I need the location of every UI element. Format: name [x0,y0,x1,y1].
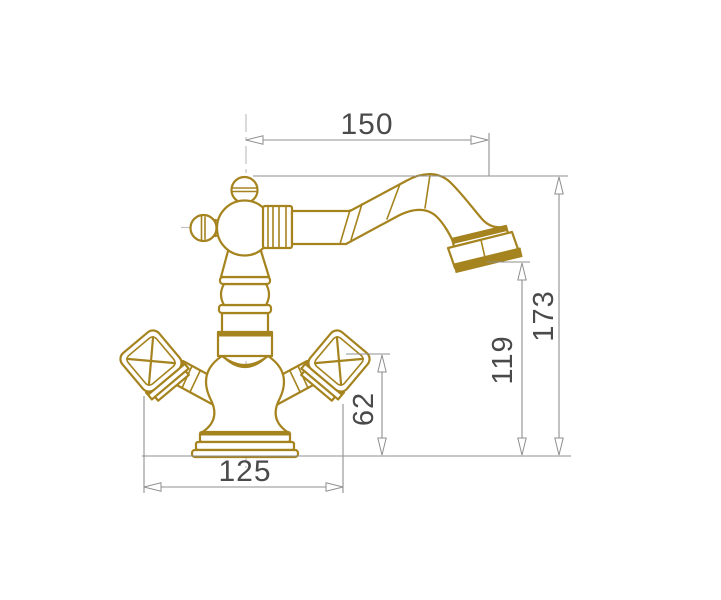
handle-left-knob [117,327,192,403]
dimension-label: 125 [218,455,271,488]
arrowhead [555,177,563,194]
arrowhead [326,483,343,491]
arrowhead [518,438,526,455]
faucet-dimension-drawing: 150 173 119 62 [0,0,721,600]
faucet-drawing [117,174,522,457]
dimension-label: 119 [487,335,519,384]
arrowhead [555,438,563,455]
dimension-label: 173 [528,290,560,341]
base-moldings [192,432,298,457]
neck-column [218,251,272,356]
handle-right-knob [298,327,373,403]
dimension-label: 150 [340,108,393,141]
dimension-spout-outlet-height: 119 [487,262,530,455]
dimension-spout-reach: 150 [246,108,489,176]
dimension-label: 62 [348,392,380,426]
arrowhead [518,263,526,280]
arrowhead [378,438,386,455]
technical-drawing-canvas: 150 173 119 62 [0,0,721,600]
arrowhead [246,136,263,144]
dimension-overall-height: 173 [528,177,563,455]
body-bell [201,356,289,433]
arrowhead [144,483,161,491]
arrowhead [378,355,386,372]
collar-rings [263,206,292,248]
arrowhead [471,136,488,144]
